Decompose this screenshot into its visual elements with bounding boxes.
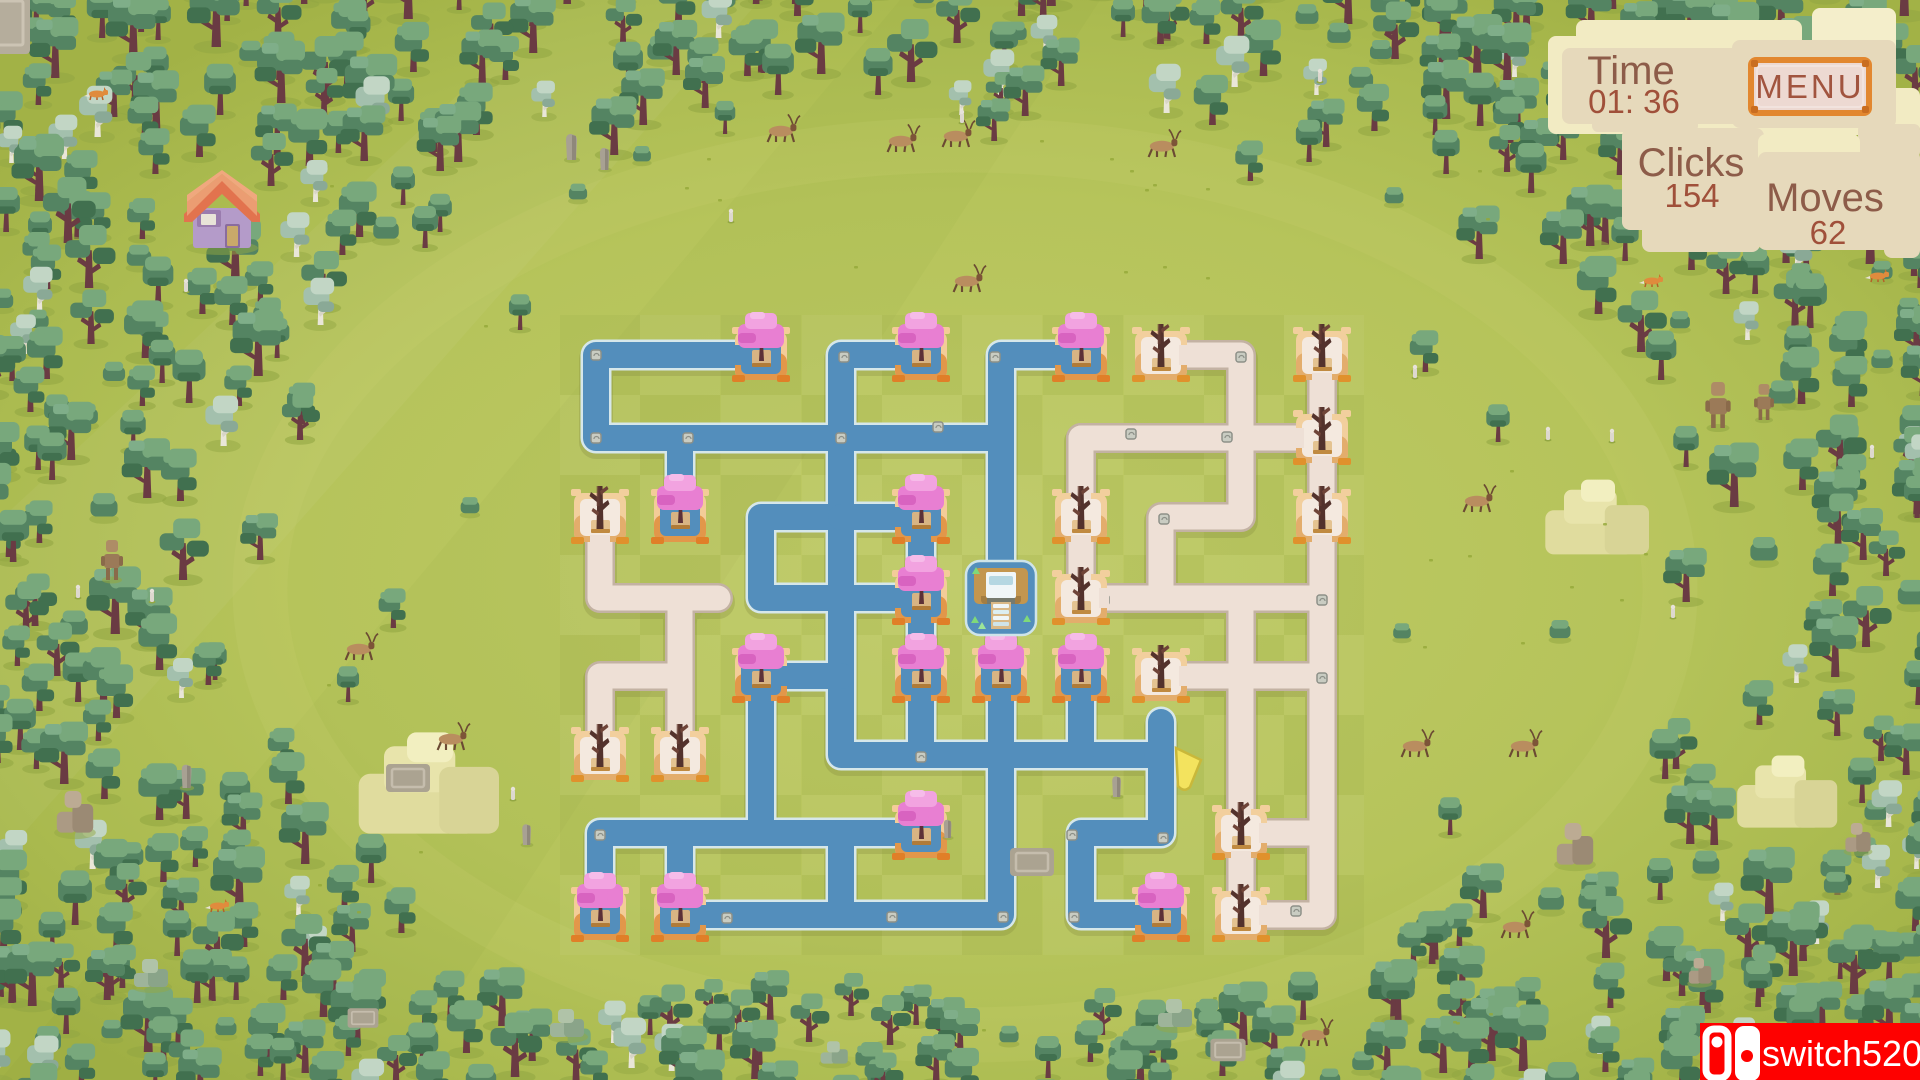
svg-text:switch520: switch520 <box>1762 1033 1920 1074</box>
svg-text:154: 154 <box>1664 177 1719 214</box>
svg-text:62: 62 <box>1810 214 1847 251</box>
svg-text:MENU: MENU <box>1755 68 1864 105</box>
svg-text:01: 36: 01: 36 <box>1588 83 1680 120</box>
